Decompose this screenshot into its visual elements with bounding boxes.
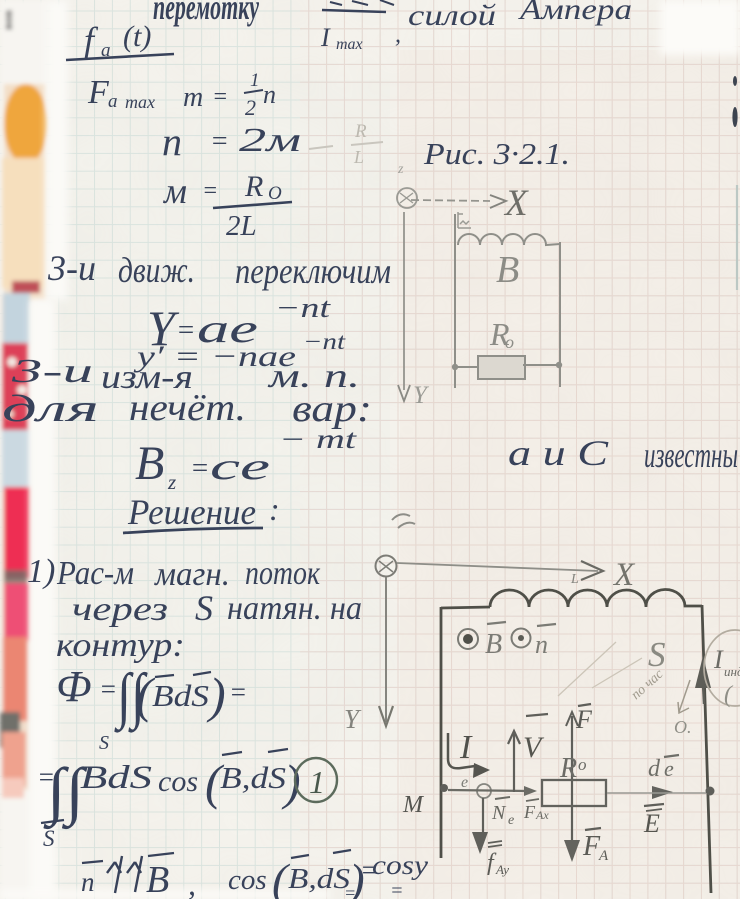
svg-text:нечёт.: нечёт. [129,387,246,429]
svg-text:n: n [162,119,182,164]
svg-text:Ампера: Ампера [518,0,632,26]
svg-text:поток: поток [245,555,321,592]
svg-text:B: B [496,249,519,291]
svg-text:R: R [244,170,263,203]
svg-text:R: R [354,121,367,142]
svg-text:для: для [2,388,99,430]
svg-text::: : [269,491,280,527]
svg-text:=: = [212,84,228,110]
svg-text:вов: вов [0,10,15,30]
svg-text:3-и: 3-и [47,248,96,288]
svg-text:через: через [72,591,168,628]
svg-text:N: N [491,802,507,824]
svg-text:): ) [281,754,301,810]
svg-text:X: X [612,557,636,593]
svg-text:M: M [402,792,425,818]
svg-text:Рис. 3·2.1.: Рис. 3·2.1. [423,136,570,171]
svg-text:cos: cos [228,864,267,896]
svg-text:1): 1) [27,553,55,590]
svg-text:I: I [459,729,473,766]
svg-text:инд: инд [724,664,740,679]
svg-text:F: F [523,802,536,822]
svg-text:cosу: cosу [372,850,428,880]
svg-text:O: O [268,183,282,204]
svg-text:n: n [535,630,548,659]
svg-text:max: max [125,92,155,112]
svg-text:B,dS: B,dS [220,760,286,795]
svg-text:I: I [713,645,724,674]
svg-text:2м: 2м [239,122,301,159]
svg-text:o: o [505,332,514,352]
svg-text:BdS: BdS [152,678,209,713]
svg-text:=: = [190,452,210,484]
svg-text:известны: известны [644,435,738,475]
svg-text:F: F [575,705,593,734]
svg-text:z: z [167,470,176,494]
svg-text:cos: cos [158,765,198,798]
svg-text:м: м [162,171,187,211]
svg-text:натян. на: натян. на [227,590,362,627]
svg-text:=: = [344,883,356,899]
svg-text:B: B [485,629,502,660]
svg-text:O.: O. [674,717,692,737]
svg-text:I: I [320,23,331,52]
svg-text:=: = [210,126,229,157]
svg-text:силой: силой [408,0,496,32]
svg-text:S: S [99,732,109,754]
svg-text:S: S [43,826,55,851]
svg-text:n: n [81,867,95,897]
svg-text:движ.: движ. [118,250,195,290]
svg-text:Ay: Ay [495,862,509,877]
svg-text:=: = [202,178,218,204]
svg-text:ce: ce [210,446,270,488]
svg-text:−nt: −nt [275,293,332,324]
svg-text:Ф: Ф [56,662,91,711]
svg-text:=: = [99,674,117,704]
svg-text:=: = [229,677,247,707]
svg-text:A: A [598,848,609,864]
svg-text:L: L [570,572,579,587]
svg-text:а и С: а и С [508,433,609,473]
svg-text:z: z [397,162,404,177]
svg-text:,: , [188,866,196,899]
svg-text:2L: 2L [226,210,257,242]
svg-text:=: = [390,880,404,899]
svg-text:E: E [643,809,660,838]
svg-text:BdS: BdS [80,760,152,796]
svg-text:max: max [336,36,363,53]
svg-text:): ) [206,667,226,723]
svg-text:1: 1 [250,70,260,91]
svg-text:n: n [263,80,276,109]
svg-text:B,dS: B,dS [288,863,351,895]
svg-text:магн.: магн. [154,556,230,593]
svg-text:Ax: Ax [535,808,549,822]
svg-text:2: 2 [245,95,256,120]
svg-text:−nt: −nt [303,329,346,354]
svg-text:e: e [508,813,514,828]
svg-text:X: X [503,183,529,224]
svg-text:Рас-м: Рас-м [56,555,134,592]
svg-text:контур:: контур: [56,627,185,664]
svg-text:S: S [195,588,213,628]
svg-text:B: B [146,859,169,899]
svg-text:e: e [664,756,674,781]
svg-text:F: F [87,74,110,111]
svg-text:B: B [135,437,164,490]
svg-text:− mt: − mt [279,424,358,454]
svg-text:1: 1 [309,764,325,800]
svg-text:переключим: переключим [235,251,391,291]
svg-text:перемотку: перемотку [153,0,260,27]
svg-text:a: a [108,91,118,112]
svg-text:3-и: 3-и [10,353,93,390]
svg-text:L: L [353,147,364,167]
svg-text:(t): (t) [123,20,151,53]
svg-text:d: d [648,756,661,782]
svg-text:,: , [395,22,401,48]
svg-text:o: o [578,755,587,774]
svg-text:e: e [461,774,468,791]
svg-text:Решение: Решение [127,492,256,532]
svg-text:m: m [183,82,203,113]
